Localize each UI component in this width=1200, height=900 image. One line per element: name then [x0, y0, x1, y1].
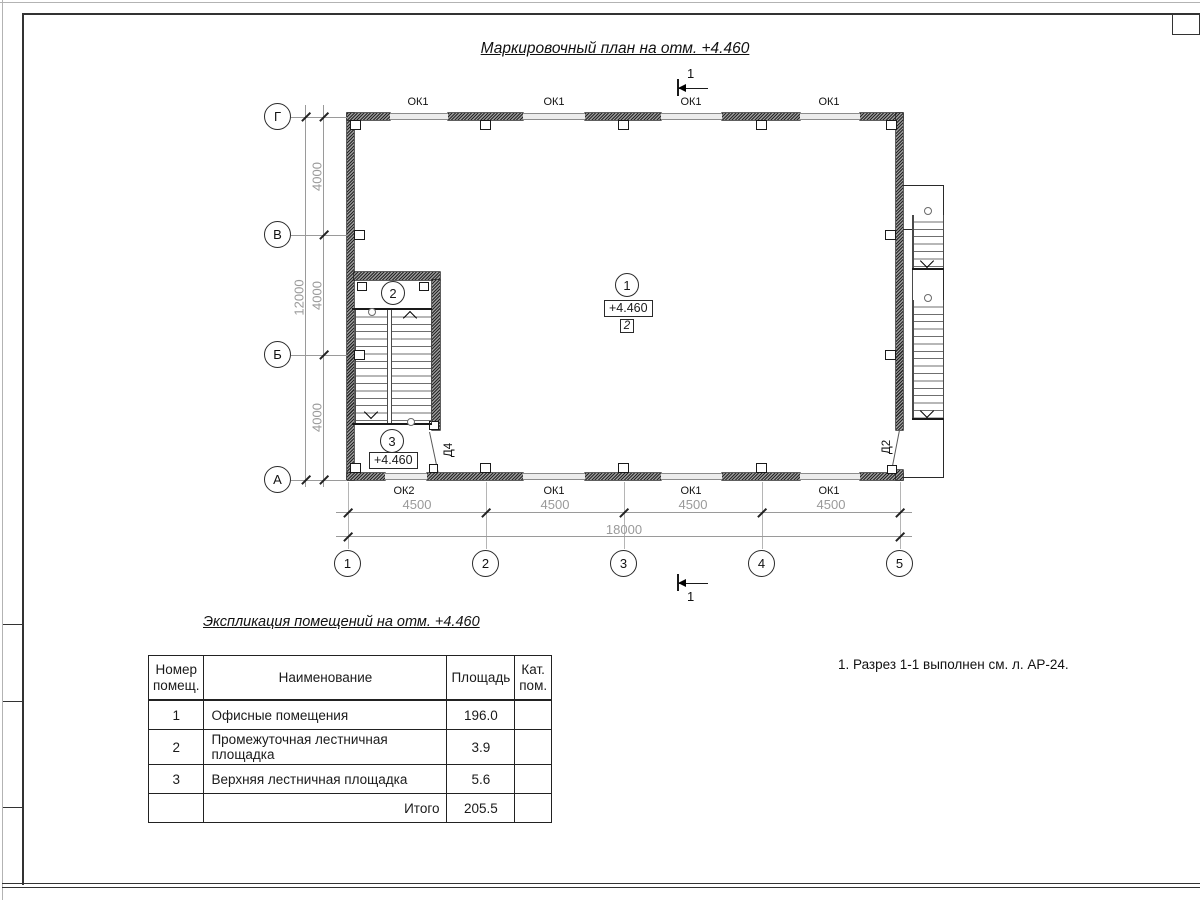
grid-bubble-col: 3 [610, 550, 637, 577]
column-marker [886, 120, 897, 130]
extension-line-col [348, 482, 349, 549]
margin-divider [3, 624, 23, 625]
cell-num: 2 [149, 730, 204, 765]
cell-area: 3.9 [447, 730, 515, 765]
dim-label-4500: 4500 [397, 497, 437, 512]
table-row: 1 Офисные помещения 196.0 [149, 700, 552, 730]
room-mark-upper-landing: 3 [380, 429, 404, 453]
cell-num: 1 [149, 700, 204, 730]
column-marker [885, 230, 896, 240]
dim-label-4000: 4000 [310, 276, 325, 316]
ext-stair-post-circle [924, 207, 932, 215]
wall-left [347, 113, 354, 480]
wall-top-pier [347, 113, 390, 120]
window-label-top: ОК1 [813, 96, 845, 108]
room-mark-office: 1 [615, 273, 639, 297]
ext-stair-break-line [912, 268, 944, 270]
grid-line-row [291, 235, 347, 236]
window-top-2 [523, 113, 585, 120]
window-label-bottom: ОК1 [813, 485, 845, 497]
frame-bottom-line [2, 883, 1200, 884]
window-bottom-1 [385, 473, 427, 480]
stair-post-circle [368, 308, 376, 316]
cell-total-label: Итого [204, 794, 447, 823]
wall-bottom-pier [585, 473, 661, 480]
header-area: Площадь [447, 656, 515, 701]
window-label-top: ОК1 [675, 96, 707, 108]
wall-top-pier [585, 113, 661, 120]
header-num: Номерпомещ. [149, 656, 204, 701]
stair-wall-post [357, 282, 367, 291]
wall-bottom-pier [722, 473, 800, 480]
window-bottom-4 [800, 473, 860, 480]
explication-title: Экспликация помещений на отм. +4.460 [203, 614, 480, 630]
table-total-row: Итого 205.5 [149, 794, 552, 823]
zone-mark-box: 2 [620, 319, 634, 333]
ext-stair-top-edge [903, 185, 944, 186]
stair-bottom-edge [352, 423, 432, 425]
window-bottom-2 [523, 473, 585, 480]
stair-enclosure-top-wall [354, 272, 440, 280]
grid-bubble-col: 2 [472, 550, 499, 577]
wall-bottom-pier [347, 473, 385, 480]
column-marker [618, 120, 629, 130]
extension-line-col [624, 482, 625, 549]
column-marker [756, 463, 767, 473]
cell-total-area: 205.5 [447, 794, 515, 823]
grid-bubble-col: 4 [748, 550, 775, 577]
table-row: 2 Промежуточная лестничная площадка 3.9 [149, 730, 552, 765]
door-d4-label: Д4 [443, 438, 455, 462]
dim-label-12000: 12000 [292, 273, 307, 323]
window-label-bottom: ОК1 [675, 485, 707, 497]
frame-bottom-line-2 [2, 887, 1200, 888]
wall-bottom-pier [427, 473, 523, 480]
cell-num-empty [149, 794, 204, 823]
drawing-sheet: Маркировочный план на отм. +4.460 Экспли… [0, 0, 1200, 900]
grid-bubble-row: А [264, 466, 291, 493]
column-marker [429, 464, 438, 473]
section-mark-bottom-label: 1 [687, 589, 694, 604]
header-name: Наименование [204, 656, 447, 701]
cell-cat-empty [515, 794, 552, 823]
ext-stair-flight-lower [913, 300, 944, 418]
ext-stair-post-circle [924, 294, 932, 302]
column-marker [350, 463, 361, 473]
section-note: 1. Разрез 1-1 выполнен см. л. АР-24. [838, 657, 1069, 672]
grid-bubble-col: 5 [886, 550, 913, 577]
cell-name: Верхняя лестничная площадка [204, 765, 447, 794]
grid-line-row [291, 480, 347, 481]
dim-label-4500: 4500 [673, 497, 713, 512]
table-header-row: Номерпомещ. Наименование Площадь Кат.пом… [149, 656, 552, 701]
extension-line-col [762, 482, 763, 549]
cell-area: 196.0 [447, 700, 515, 730]
frame-top-line [22, 13, 1200, 15]
window-label-top: ОК1 [538, 96, 570, 108]
cell-num: 3 [149, 765, 204, 794]
elevation-box-main: +4.460 [604, 300, 653, 317]
sheet-outer-top-line [0, 2, 1200, 3]
door-post [887, 465, 897, 474]
cell-area: 5.6 [447, 765, 515, 794]
room-mark-mid-landing: 2 [381, 281, 405, 305]
column-marker [480, 463, 491, 473]
dim-label-4000: 4000 [310, 398, 325, 438]
column-marker [354, 230, 365, 240]
elevation-box-stair: +4.460 [369, 452, 418, 469]
grid-bubble-row: Г [264, 103, 291, 130]
ext-stair-bottom-edge [903, 477, 944, 478]
window-top-4 [800, 113, 860, 120]
grid-line-row [291, 117, 347, 118]
ext-stair-break-line [912, 418, 944, 420]
window-label-top: ОК1 [402, 96, 434, 108]
sheet-outer-left-line [2, 0, 3, 900]
header-cat: Кат.пом. [515, 656, 552, 701]
window-top-1 [390, 113, 448, 120]
wall-right-stub [896, 470, 903, 480]
dim-label-18000: 18000 [599, 522, 649, 537]
extension-line-col [486, 482, 487, 549]
window-top-3 [661, 113, 722, 120]
grid-bubble-row: В [264, 221, 291, 248]
window-label-bottom: ОК2 [388, 485, 420, 497]
stair-post-circle [407, 418, 415, 426]
frame-corner-box [1172, 13, 1200, 35]
window-label-bottom: ОК1 [538, 485, 570, 497]
extension-line-col [900, 482, 901, 549]
cell-cat [515, 730, 552, 765]
cell-name: Промежуточная лестничная площадка [204, 730, 447, 765]
cell-name: Офисные помещения [204, 700, 447, 730]
dim-label-4500: 4500 [535, 497, 575, 512]
stair-flight-right [391, 310, 432, 423]
column-marker [350, 120, 361, 130]
wall-right [896, 113, 903, 430]
dim-label-4000: 4000 [310, 157, 325, 197]
column-marker [885, 350, 896, 360]
section-mark-top-label: 1 [687, 66, 694, 81]
wall-top-pier [448, 113, 523, 120]
frame-left-line [22, 13, 24, 885]
door-d2-label: Д2 [881, 435, 893, 459]
column-marker [756, 120, 767, 130]
column-marker [354, 350, 365, 360]
dim-label-4500: 4500 [811, 497, 851, 512]
wall-top-pier [722, 113, 800, 120]
stair-wall-post [419, 282, 429, 291]
plan-title: Маркировочный план на отм. +4.460 [400, 40, 830, 58]
section-mark-bottom-arrow-icon [678, 579, 686, 587]
grid-bubble-col: 1 [334, 550, 361, 577]
section-mark-top-arrow-icon [678, 84, 686, 92]
grid-line-row [291, 355, 347, 356]
column-marker [480, 120, 491, 130]
grid-bubble-row: Б [264, 341, 291, 368]
margin-divider [3, 701, 23, 702]
cell-cat [515, 765, 552, 794]
margin-divider [3, 807, 23, 808]
column-marker [618, 463, 629, 473]
window-bottom-3 [661, 473, 722, 480]
stair-enclosure-right-wall [432, 280, 440, 430]
table-row: 3 Верхняя лестничная площадка 5.6 [149, 765, 552, 794]
explication-table: Номерпомещ. Наименование Площадь Кат.пом… [148, 655, 552, 823]
cell-cat [515, 700, 552, 730]
